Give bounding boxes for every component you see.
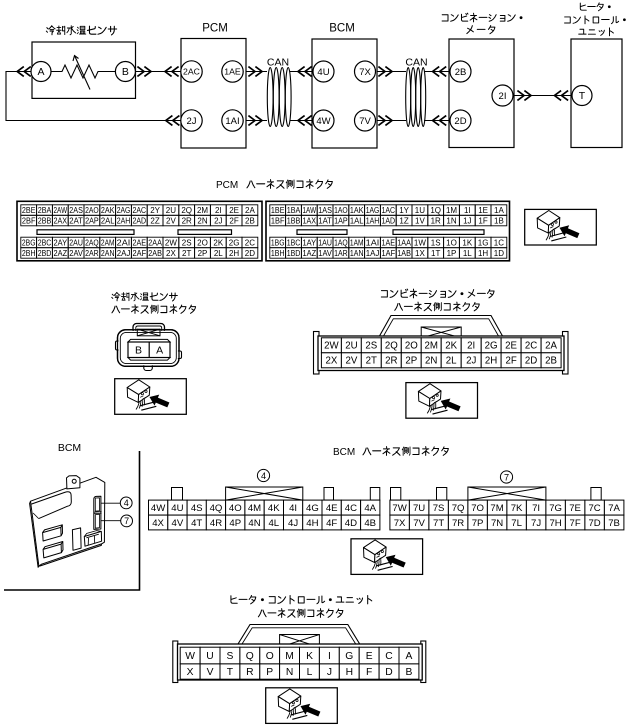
svg-text:1U: 1U	[415, 206, 425, 215]
svg-text:4H: 4H	[306, 518, 318, 529]
svg-text:V: V	[207, 667, 214, 678]
svg-text:2AN: 2AN	[101, 249, 115, 258]
svg-text:2AL: 2AL	[101, 216, 115, 225]
svg-text:2R: 2R	[182, 216, 192, 225]
svg-text:2AU: 2AU	[69, 238, 83, 247]
svg-text:A: A	[405, 651, 412, 662]
svg-text:2S: 2S	[365, 341, 377, 352]
svg-text:1AQ: 1AQ	[334, 238, 348, 247]
svg-text:1AI: 1AI	[225, 116, 239, 127]
svg-text:2J: 2J	[214, 216, 222, 225]
svg-text:2E: 2E	[229, 206, 239, 215]
svg-text:4P: 4P	[229, 518, 241, 529]
svg-text:2B: 2B	[455, 67, 467, 78]
svg-text:P: P	[266, 667, 273, 678]
svg-text:7F: 7F	[569, 518, 580, 529]
svg-text:2AF: 2AF	[133, 249, 147, 258]
svg-text:1AI: 1AI	[366, 238, 380, 247]
svg-text:7O: 7O	[471, 503, 484, 514]
svg-text:1H: 1H	[478, 249, 488, 258]
svg-text:2D: 2D	[525, 356, 537, 367]
svg-text:1AR: 1AR	[334, 249, 348, 258]
svg-text:2T: 2T	[366, 356, 377, 367]
svg-text:4J: 4J	[288, 518, 298, 529]
svg-text:1D: 1D	[494, 249, 504, 258]
svg-text:1K: 1K	[462, 238, 472, 247]
svg-text:1AP: 1AP	[334, 216, 348, 225]
svg-text:4C: 4C	[345, 503, 357, 514]
svg-text:1T: 1T	[431, 249, 440, 258]
svg-text:1Y: 1Y	[399, 206, 409, 215]
svg-text:2D: 2D	[454, 116, 466, 127]
svg-text:1AF: 1AF	[382, 249, 396, 258]
svg-text:1AL: 1AL	[350, 216, 364, 225]
svg-text:2AI: 2AI	[117, 238, 131, 247]
svg-text:2BB: 2BB	[38, 216, 52, 225]
svg-text:7V: 7V	[359, 116, 371, 127]
svg-text:1AE: 1AE	[224, 67, 241, 77]
svg-text:7M: 7M	[490, 503, 503, 514]
svg-text:7: 7	[124, 516, 129, 526]
svg-text:X: X	[187, 667, 194, 678]
svg-text:2BH: 2BH	[22, 249, 36, 258]
svg-text:1AS: 1AS	[318, 206, 332, 215]
svg-text:2AS: 2AS	[69, 206, 83, 215]
svg-text:2U: 2U	[166, 206, 176, 215]
svg-text:J: J	[327, 667, 332, 678]
svg-text:1E: 1E	[478, 206, 488, 215]
svg-text:4L: 4L	[268, 518, 279, 529]
svg-text:1BF: 1BF	[271, 216, 285, 225]
svg-text:1AC: 1AC	[382, 206, 396, 215]
svg-text:4: 4	[261, 471, 266, 481]
svg-text:1AV: 1AV	[318, 249, 332, 258]
svg-text:2L: 2L	[446, 356, 457, 367]
svg-text:7: 7	[504, 472, 509, 482]
svg-text:1P: 1P	[447, 249, 457, 258]
svg-text:7Q: 7Q	[452, 503, 465, 514]
svg-text:Q: Q	[246, 651, 254, 662]
svg-text:4T: 4T	[191, 518, 202, 529]
svg-text:2X: 2X	[325, 356, 337, 367]
svg-text:PCM: PCM	[202, 23, 228, 35]
svg-text:D: D	[385, 667, 392, 678]
svg-text:1N: 1N	[446, 216, 456, 225]
svg-text:H: H	[346, 667, 353, 678]
svg-text:1X: 1X	[415, 249, 425, 258]
svg-text:2G: 2G	[485, 341, 498, 352]
svg-text:4X: 4X	[152, 518, 164, 529]
svg-text:2S: 2S	[182, 238, 192, 247]
svg-text:1Q: 1Q	[430, 206, 441, 215]
svg-text:T: T	[227, 667, 234, 678]
svg-text:2AQ: 2AQ	[85, 238, 99, 247]
svg-text:1V: 1V	[415, 216, 425, 225]
svg-text:4: 4	[124, 498, 129, 508]
svg-text:7U: 7U	[413, 503, 425, 514]
svg-text:2M: 2M	[197, 206, 208, 215]
svg-text:2Q: 2Q	[181, 206, 192, 215]
svg-text:2W: 2W	[324, 341, 339, 352]
svg-text:2L: 2L	[214, 249, 223, 258]
svg-text:7X: 7X	[394, 518, 406, 529]
svg-text:1AY: 1AY	[303, 238, 317, 247]
svg-text:4N: 4N	[248, 518, 260, 529]
svg-text:7C: 7C	[588, 503, 600, 514]
svg-text:2F: 2F	[229, 216, 238, 225]
svg-text:7D: 7D	[588, 518, 600, 529]
svg-text:2T: 2T	[182, 249, 191, 258]
svg-text:2P: 2P	[198, 249, 208, 258]
svg-text:1AD: 1AD	[382, 216, 396, 225]
svg-text:7P: 7P	[472, 518, 484, 529]
svg-text:2V: 2V	[166, 216, 176, 225]
svg-text:4V: 4V	[172, 518, 184, 529]
svg-text:4S: 4S	[191, 503, 203, 514]
svg-text:2AV: 2AV	[69, 249, 83, 258]
svg-text:2AM: 2AM	[101, 238, 115, 247]
svg-text:2AO: 2AO	[85, 206, 99, 215]
svg-text:2AB: 2AB	[148, 249, 162, 258]
svg-text:1C: 1C	[494, 238, 504, 247]
svg-text:T: T	[579, 90, 586, 102]
svg-text:1M: 1M	[446, 206, 457, 215]
svg-text:2BA: 2BA	[38, 206, 52, 215]
svg-text:7N: 7N	[491, 518, 503, 529]
svg-text:2B: 2B	[245, 216, 255, 225]
svg-text:2AK: 2AK	[101, 206, 115, 215]
svg-text:4Q: 4Q	[210, 503, 223, 514]
svg-text:M: M	[285, 651, 294, 662]
svg-text:2I: 2I	[499, 91, 507, 102]
svg-text:1O: 1O	[446, 238, 457, 247]
svg-text:4D: 4D	[345, 518, 357, 529]
svg-text:2J: 2J	[186, 116, 196, 127]
svg-text:1AU: 1AU	[318, 238, 332, 247]
svg-text:1AO: 1AO	[334, 206, 348, 215]
svg-text:2O: 2O	[197, 238, 208, 247]
svg-text:1Z: 1Z	[399, 216, 408, 225]
svg-text:7S: 7S	[433, 503, 445, 514]
svg-text:4W: 4W	[151, 503, 166, 514]
svg-text:2Y: 2Y	[150, 206, 160, 215]
svg-text:2AT: 2AT	[69, 216, 83, 225]
svg-text:2AJ: 2AJ	[117, 249, 131, 258]
svg-text:1AN: 1AN	[350, 249, 364, 258]
svg-text:1BA: 1BA	[287, 206, 301, 215]
svg-text:B: B	[122, 66, 129, 78]
svg-text:2BC: 2BC	[38, 238, 52, 247]
svg-text:F: F	[366, 667, 372, 678]
svg-text:4B: 4B	[364, 518, 376, 529]
svg-text:BCM: BCM	[58, 442, 81, 454]
svg-text:2I: 2I	[215, 206, 222, 215]
svg-text:B: B	[405, 667, 412, 678]
svg-text:1W: 1W	[414, 238, 426, 247]
svg-text:2AW: 2AW	[54, 206, 68, 215]
svg-text:7V: 7V	[413, 518, 425, 529]
svg-text:1BC: 1BC	[287, 238, 301, 247]
svg-text:I: I	[328, 651, 331, 662]
svg-text:A: A	[156, 344, 163, 356]
svg-text:CAN: CAN	[267, 57, 289, 69]
svg-text:2W: 2W	[165, 238, 177, 247]
svg-text:2J: 2J	[466, 356, 476, 367]
svg-text:4G: 4G	[306, 503, 319, 514]
svg-text:2AP: 2AP	[85, 216, 99, 225]
svg-text:2AA: 2AA	[148, 238, 162, 247]
svg-text:2G: 2G	[229, 238, 240, 247]
svg-text:1AX: 1AX	[303, 216, 317, 225]
svg-text:2O: 2O	[405, 341, 418, 352]
svg-text:1BE: 1BE	[271, 206, 285, 215]
svg-text:1BB: 1BB	[287, 216, 301, 225]
svg-text:A: A	[37, 66, 44, 78]
svg-text:4E: 4E	[326, 503, 338, 514]
svg-text:K: K	[306, 651, 313, 662]
svg-text:4O: 4O	[229, 503, 242, 514]
svg-text:2E: 2E	[505, 341, 517, 352]
svg-text:C: C	[385, 651, 393, 662]
svg-text:7I: 7I	[532, 503, 540, 514]
svg-text:2C: 2C	[525, 341, 537, 352]
svg-text:1AT: 1AT	[318, 216, 332, 225]
svg-text:2K: 2K	[445, 341, 457, 352]
svg-text:1R: 1R	[431, 216, 441, 225]
svg-text:7J: 7J	[531, 518, 541, 529]
svg-text:1AA: 1AA	[397, 238, 411, 247]
svg-text:7T: 7T	[433, 518, 444, 529]
svg-text:4R: 4R	[210, 518, 222, 529]
svg-text:4I: 4I	[289, 503, 297, 514]
svg-text:2AG: 2AG	[117, 206, 131, 215]
svg-text:7H: 7H	[549, 518, 561, 529]
svg-text:4W: 4W	[316, 116, 330, 127]
svg-text:2AX: 2AX	[54, 216, 68, 225]
svg-text:R: R	[246, 667, 253, 678]
svg-text:2F: 2F	[505, 356, 516, 367]
svg-text:4K: 4K	[268, 503, 280, 514]
svg-text:1S: 1S	[431, 238, 441, 247]
svg-text:1B: 1B	[494, 216, 504, 225]
svg-text:1J: 1J	[463, 216, 471, 225]
svg-text:2P: 2P	[405, 356, 417, 367]
svg-text:2AZ: 2AZ	[54, 249, 68, 258]
svg-text:4U: 4U	[171, 503, 183, 514]
svg-text:2C: 2C	[245, 238, 255, 247]
svg-text:2Z: 2Z	[150, 216, 159, 225]
svg-text:1AM: 1AM	[350, 238, 364, 247]
svg-text:7R: 7R	[452, 518, 464, 529]
svg-text:2N: 2N	[425, 356, 437, 367]
svg-text:7X: 7X	[359, 67, 371, 78]
svg-text:1G: 1G	[478, 238, 489, 247]
svg-text:2K: 2K	[213, 238, 223, 247]
svg-text:PCM: PCM	[216, 180, 238, 191]
svg-text:2A: 2A	[245, 206, 255, 215]
svg-text:U: U	[206, 651, 213, 662]
svg-text:7B: 7B	[608, 518, 620, 529]
svg-text:7L: 7L	[511, 518, 522, 529]
svg-text:2AE: 2AE	[133, 238, 147, 247]
svg-text:1AK: 1AK	[350, 206, 364, 215]
svg-text:4U: 4U	[317, 67, 329, 78]
svg-text:1AB: 1AB	[397, 249, 411, 258]
svg-text:2AD: 2AD	[133, 216, 147, 225]
svg-text:2H: 2H	[229, 249, 239, 258]
svg-text:7E: 7E	[569, 503, 581, 514]
svg-text:CAN: CAN	[405, 57, 427, 69]
svg-text:1AE: 1AE	[382, 238, 396, 247]
svg-text:2BE: 2BE	[22, 206, 36, 215]
svg-text:2BF: 2BF	[22, 216, 36, 225]
svg-text:2I: 2I	[467, 341, 475, 352]
svg-text:2AC: 2AC	[183, 67, 200, 77]
svg-text:7W: 7W	[392, 503, 407, 514]
svg-text:2BD: 2BD	[38, 249, 52, 258]
svg-text:2N: 2N	[197, 216, 207, 225]
svg-text:2M: 2M	[424, 341, 437, 352]
svg-text:7K: 7K	[511, 503, 523, 514]
svg-text:4A: 4A	[364, 503, 376, 514]
svg-text:2BG: 2BG	[22, 238, 36, 247]
svg-text:2U: 2U	[345, 341, 357, 352]
svg-text:1AH: 1AH	[366, 216, 380, 225]
svg-text:2X: 2X	[166, 249, 176, 258]
svg-text:2AY: 2AY	[54, 238, 68, 247]
svg-text:1F: 1F	[478, 216, 487, 225]
svg-text:1BG: 1BG	[271, 238, 285, 247]
svg-text:1BD: 1BD	[287, 249, 301, 258]
svg-text:2A: 2A	[545, 341, 557, 352]
svg-text:4F: 4F	[326, 518, 337, 529]
svg-text:W: W	[185, 651, 195, 662]
svg-text:1I: 1I	[464, 206, 471, 215]
svg-text:L: L	[307, 667, 313, 678]
svg-text:1AG: 1AG	[366, 206, 380, 215]
svg-text:G: G	[345, 651, 353, 662]
svg-text:1AJ: 1AJ	[366, 249, 380, 258]
svg-text:7G: 7G	[549, 503, 562, 514]
svg-text:1BH: 1BH	[271, 249, 285, 258]
svg-text:1AW: 1AW	[303, 206, 317, 215]
svg-text:2D: 2D	[245, 249, 255, 258]
svg-text:S: S	[226, 651, 233, 662]
svg-text:N: N	[286, 667, 293, 678]
svg-text:1L: 1L	[463, 249, 472, 258]
svg-text:BCM: BCM	[329, 23, 355, 35]
svg-text:1A: 1A	[494, 206, 504, 215]
svg-text:2R: 2R	[385, 356, 397, 367]
svg-text:2AC: 2AC	[133, 206, 147, 215]
svg-text:2V: 2V	[345, 356, 357, 367]
svg-text:2AR: 2AR	[85, 249, 99, 258]
svg-text:BCM: BCM	[333, 447, 355, 458]
svg-text:E: E	[366, 651, 373, 662]
svg-text:2B: 2B	[545, 356, 557, 367]
svg-text:2AH: 2AH	[117, 216, 131, 225]
svg-text:O: O	[266, 651, 274, 662]
svg-text:7A: 7A	[608, 503, 620, 514]
svg-text:2H: 2H	[485, 356, 497, 367]
svg-text:2Q: 2Q	[385, 341, 398, 352]
svg-text:B: B	[135, 344, 142, 356]
svg-text:1AZ: 1AZ	[303, 249, 317, 258]
svg-text:4M: 4M	[248, 503, 261, 514]
